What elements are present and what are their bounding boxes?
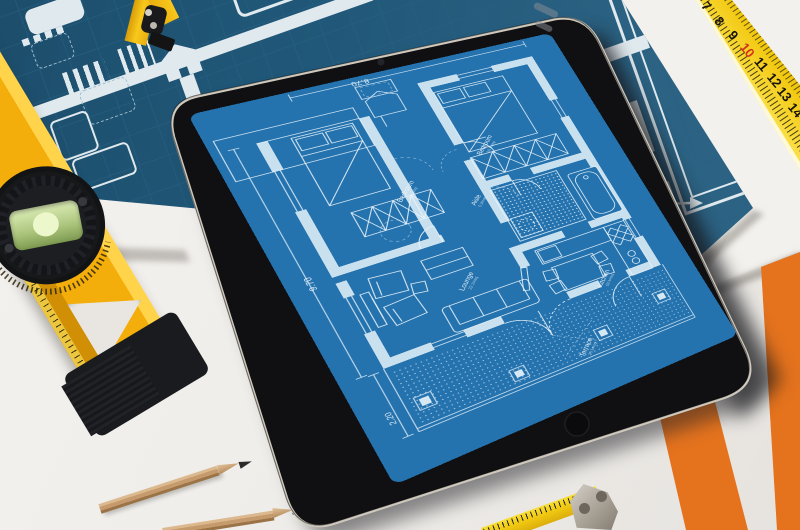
- svg-text:9.70: 9.70: [302, 276, 321, 293]
- svg-text:2.20: 2.20: [382, 411, 399, 427]
